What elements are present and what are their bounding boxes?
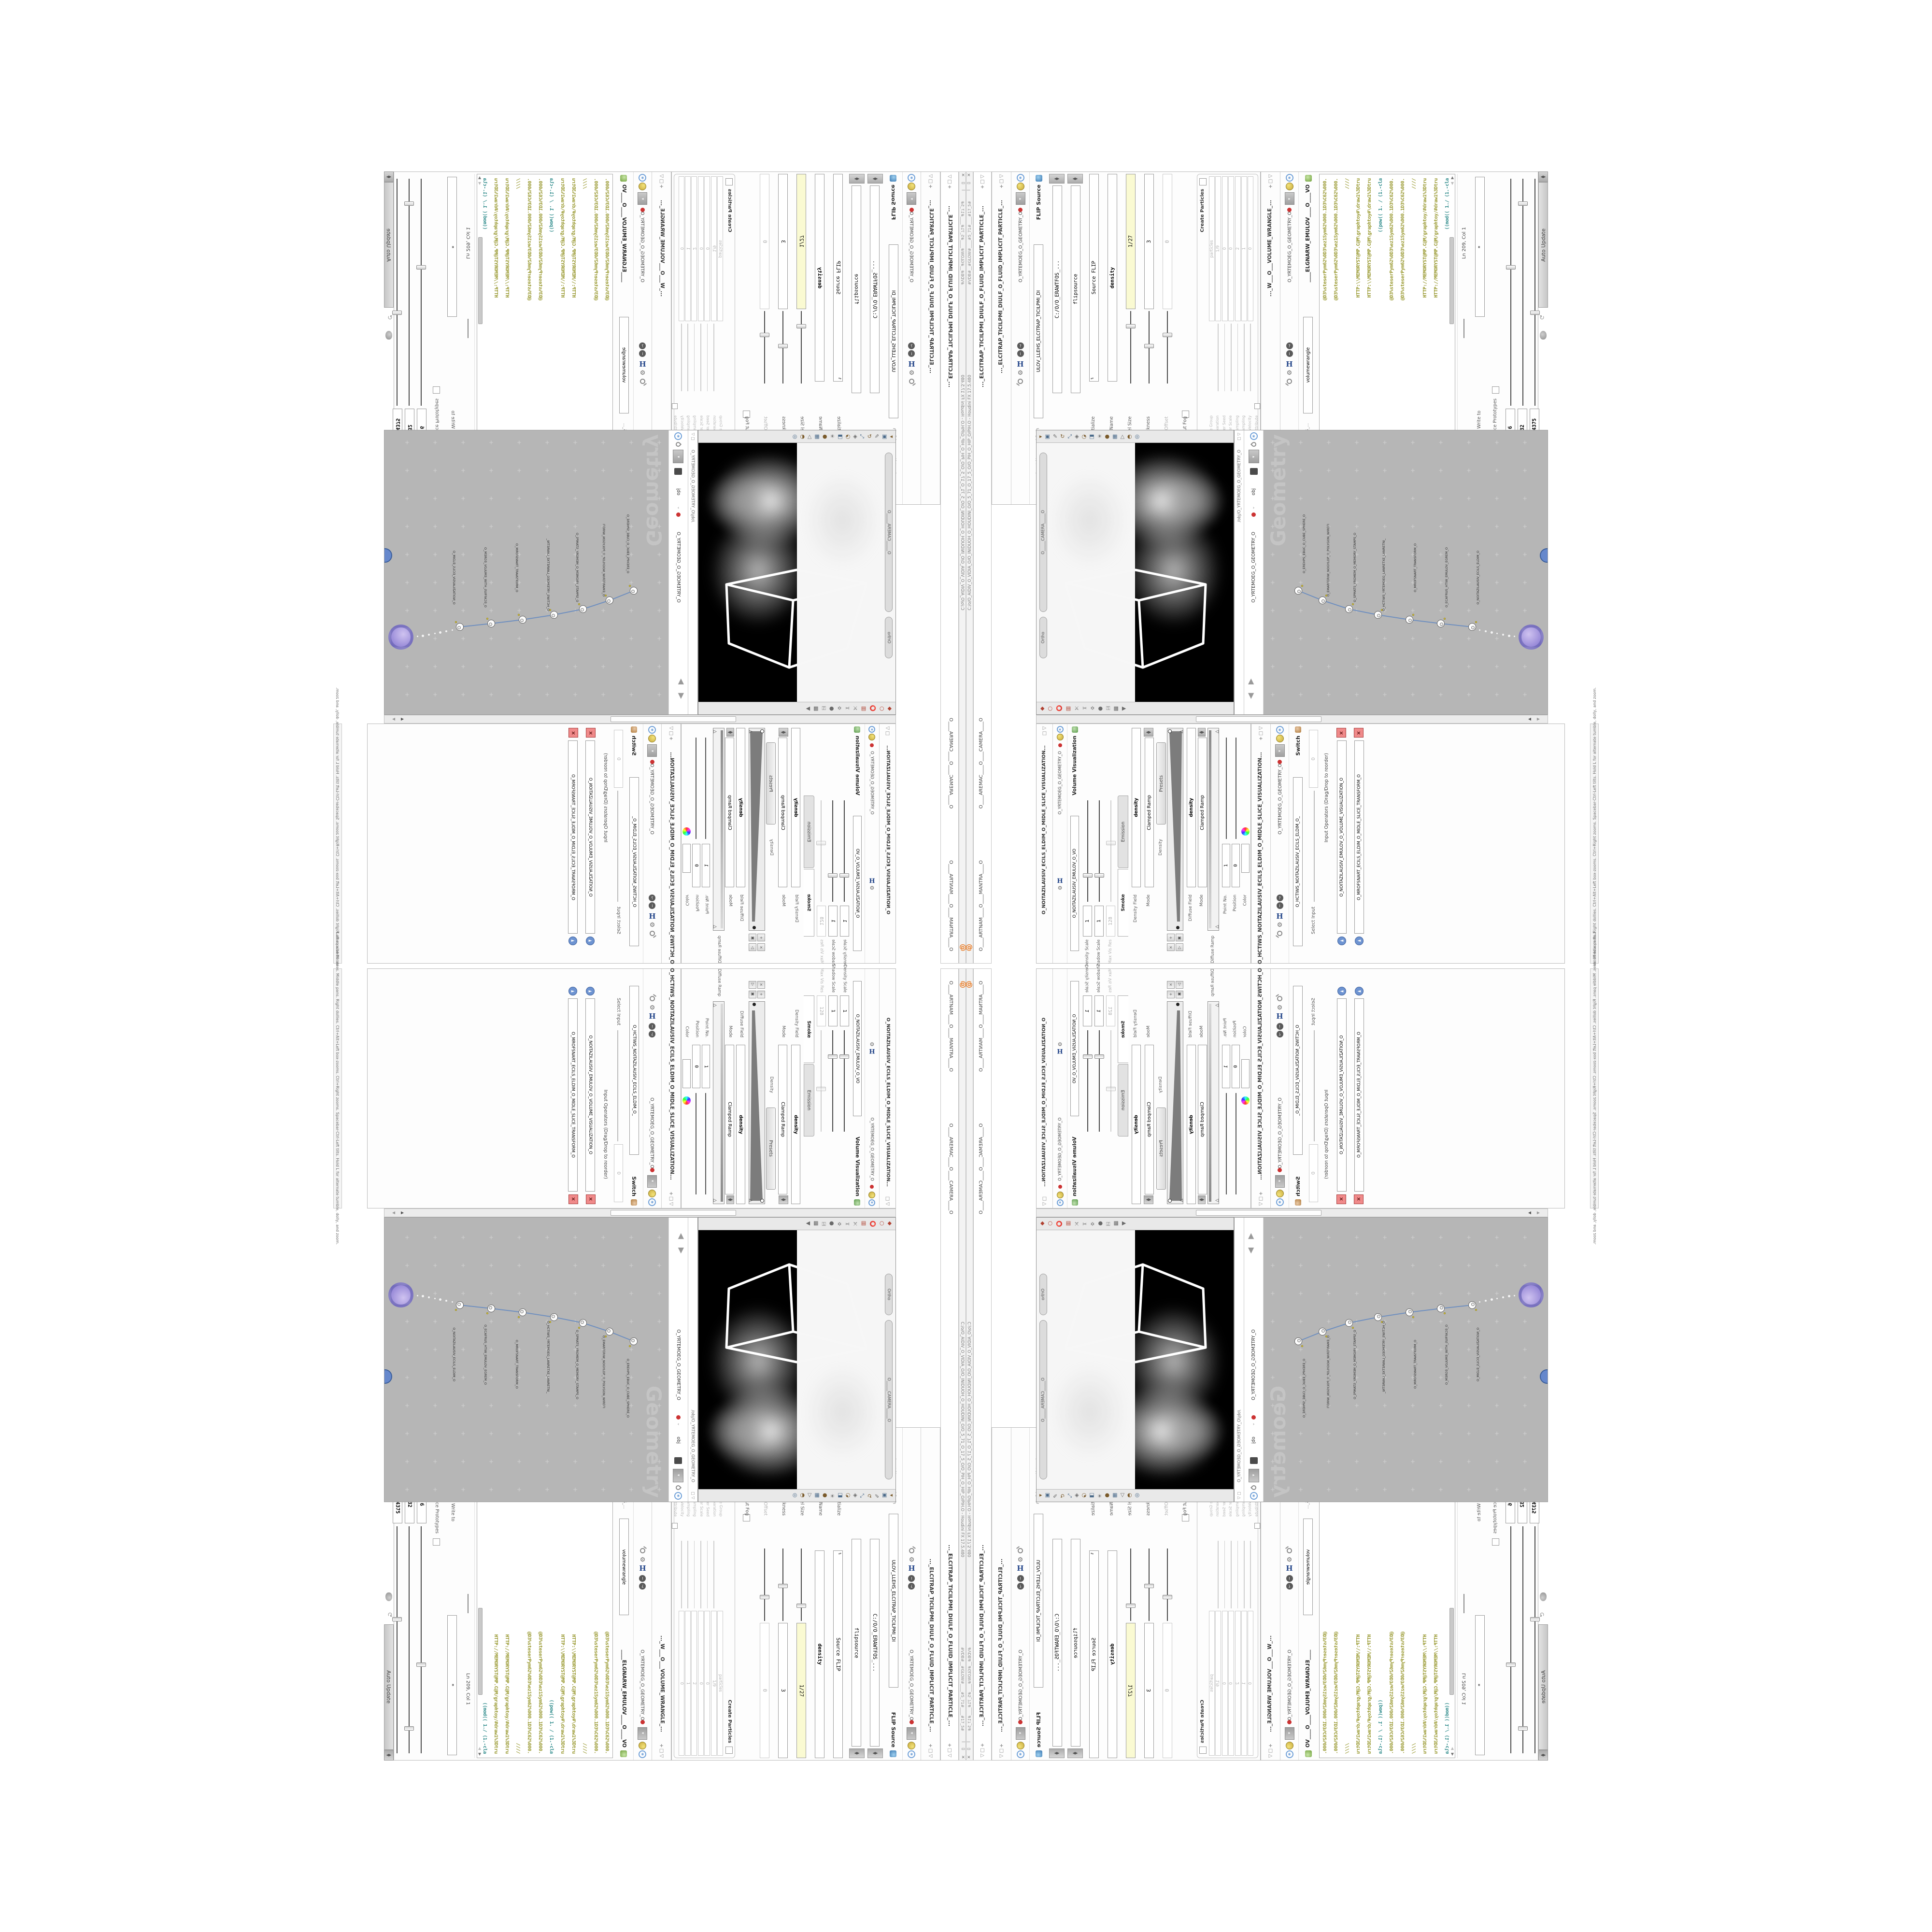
point-slider-track[interactable] [1236,738,1236,839]
input-operator-field[interactable]: O_NOITAZILAUSIV_EMULOV_O_VOLUME_VISUALIZ… [585,998,595,1192]
pane-play-icon[interactable]: ▷ [1037,1201,1052,1207]
network-node[interactable] [1319,1328,1326,1335]
editor-scroll-down-icon[interactable]: ▼ [478,181,481,185]
gear-icon[interactable]: ⚙ [1053,1041,1067,1047]
volviz-slider-track[interactable] [1110,1030,1111,1132]
param-value-field[interactable]: 1/27 [796,174,806,309]
breadcrumb-geometry[interactable]: O_YRTEMOEG_O_GEOMETRY_O [869,751,874,814]
group-value-field[interactable]: 0 [679,176,684,321]
select-slider-track[interactable] [618,1030,619,1141]
pane-maximize-icon[interactable]: □ [1261,1748,1280,1753]
pane-tab-title[interactable]: O_HCTIWS_NOITAZILAUSIV_ECILS_ELDIM_O_MID… [669,752,675,964]
select-input-field[interactable]: 0 [614,730,623,788]
network-node[interactable] [456,1301,464,1309]
param-value-field[interactable]: flipsource [1071,185,1080,393]
viewport-sphere-tool-icon[interactable]: ● [829,705,834,711]
param-value-field[interactable]: 3 [1144,174,1154,309]
viewport-tool-move-icon[interactable]: ✎ [875,1492,879,1499]
ramp-handle-triangle[interactable]: ◁ [1215,729,1219,734]
ramp-point-field[interactable]: 0 [1232,844,1240,887]
field-spinner-cap[interactable]: ◀▶ [1144,728,1153,737]
pane-maximize-icon[interactable]: □ [662,1196,681,1201]
node-display-flag[interactable] [486,1312,488,1314]
viewport-tool-rotate-icon[interactable]: ↻ [1060,433,1065,440]
color-wheel-icon[interactable] [1241,1096,1250,1105]
particle-fluid-node[interactable]: O_TRANSPART_TLUZER_O_RESULT_TRANSPARENT_… [388,625,413,650]
volviz-slider-track[interactable] [1099,1030,1100,1132]
spare-slider-track[interactable] [1510,1526,1511,1753]
editor-scroll-up-icon[interactable]: ▲ [478,1752,481,1757]
pane-play-icon[interactable]: ▷ [662,1201,681,1207]
volviz-slider-value-field[interactable]: 128 [817,995,826,1026]
info-icon[interactable]: i [1017,350,1024,357]
point-slider-track[interactable] [696,1093,697,1194]
viewport-tool-snap-icon[interactable]: ◈ [1075,1492,1079,1499]
viewport-tool-viewcube-icon[interactable]: ◔ [1082,433,1087,440]
group-slider-track[interactable] [681,324,682,391]
volumes-write-to-field[interactable]: * [447,177,457,317]
ramp-point-field[interactable]: 1 [702,844,710,887]
gear-icon[interactable]: ⚙ [1011,1555,1029,1563]
group-slider-track[interactable] [1224,1541,1225,1608]
viewport-tool-select-icon[interactable]: ▸ [1039,1492,1042,1499]
pane-split-icon[interactable]: + [992,184,1011,189]
material-ball-icon[interactable] [869,1192,876,1198]
spare-slider-track[interactable] [1510,179,1511,406]
presets-button[interactable]: Presets [1156,1108,1166,1190]
scene-viewport-pane[interactable]: ▸▣✎↻⤢◈◔⬒☀●▦△◐◎O_____CAMERA_____OOrtho◆○⭕… [698,1217,896,1502]
viewport-tool-render-icon[interactable]: ⬒ [838,1492,842,1499]
node-display-flag[interactable] [1301,1345,1303,1347]
pane-play-icon[interactable]: ▷ [921,173,940,179]
param-value-field[interactable]: C:/O/O_ERAWTFOS_... [870,1539,880,1747]
viewport-flipbook-icon[interactable]: ▶ [1122,705,1126,711]
volviz-tab-title[interactable]: O_NOITAZILAUSIV_ECILS_ELDIM_O_MIDLE_SLIC… [1041,745,1047,914]
target-icon[interactable]: ◉ [1017,174,1024,182]
particle-fluid-node[interactable]: O_TRANSPART_TLUZER_O_RESULT_TRANSPARENT_… [1519,625,1544,650]
spare-slider-handle[interactable] [417,1662,426,1667]
horizontal-scrollbar[interactable]: ◀ ▶ [384,715,896,724]
viewport-jack-icon[interactable]: ✡ [1090,705,1094,711]
info-icon[interactable]: i [649,902,656,909]
help-icon[interactable]: ? [909,1583,915,1590]
param-slider-handle[interactable] [778,1584,788,1589]
volviz-slider-value-field[interactable]: 1 [828,995,838,1026]
reorder-input-button[interactable]: ◄ [1337,937,1346,945]
param-value-field[interactable]: 3 [778,1623,788,1758]
group-value-field[interactable]: 2 [1235,176,1241,321]
material-ball-icon[interactable] [639,1742,647,1749]
pane-tab-button[interactable]: ▸ [1275,744,1285,757]
breadcrumb-geometry[interactable]: O_YRTEMOEG_O_GEOMETRY_O [639,1649,645,1720]
param-value-field[interactable]: Source FLIP▴▾ [833,1550,843,1758]
ramp-curve-button[interactable]: △ [749,943,756,951]
group-slider-track[interactable] [694,324,695,391]
target-icon[interactable]: ◉ [649,726,656,734]
pane-play-icon[interactable]: ▷ [992,173,1011,179]
create-particles-checkbox[interactable] [725,1747,733,1754]
point-slider-track[interactable] [1226,738,1227,839]
help-icon[interactable]: ? [639,1583,646,1590]
density-ramp-widget[interactable]: ◁ [1167,728,1183,931]
volviz-field[interactable]: Clamped Ramp [1198,1045,1207,1194]
breadcrumb-geometry[interactable]: O_YRTEMOEG_O_GEOMETRY_O [909,1649,914,1720]
volviz-field[interactable]: density [1132,728,1141,887]
scroll-left-icon[interactable]: ◀ [401,717,404,721]
field-spinner-cap[interactable]: ◀▶ [779,1195,788,1204]
ramp-handle-triangle2[interactable]: ◁ [713,1003,717,1008]
pane-split-icon[interactable]: + [974,185,991,190]
volviz-slider-handle[interactable] [1106,841,1116,845]
volviz-slider-handle[interactable] [828,1054,838,1059]
density-ramp-widget[interactable]: ◁ [1167,1001,1183,1204]
input-operator-field[interactable]: O_MROFSNART_ECILS_ELDIM_O_MIDLE_SLICE_TR… [1354,998,1364,1192]
viewport-tool-grid-icon[interactable]: ▦ [1112,1492,1117,1499]
ramp-handle-circle[interactable] [1168,1199,1172,1203]
network-node[interactable] [487,620,495,627]
viewport-jack-icon[interactable]: ✡ [838,1221,842,1227]
volviz-name-field[interactable]: O_NOITAZILAUSIV_EMULOV_O_VO [853,816,862,951]
material-ball-icon[interactable] [869,734,876,740]
close-icon[interactable]: × [961,173,965,178]
info-icon[interactable]: i [639,350,646,357]
point-slider-track[interactable] [1226,1093,1227,1194]
ramp-handle-triangle[interactable]: ◁ [713,729,717,734]
ramp-handle-triangle2[interactable]: ◁ [1215,924,1219,929]
viewport-tool-camera-icon[interactable]: ◎ [793,433,797,440]
param-value-field[interactable]: flipsource [852,1539,861,1747]
point-slider-track[interactable] [1236,1093,1236,1194]
select-input-field[interactable]: 0 [614,1144,623,1202]
group-value-field[interactable]: 0 [679,1611,684,1756]
pin-icon[interactable] [1250,1484,1257,1491]
viewport-render-area[interactable]: O_____CAMERA_____OOrtho [1037,443,1234,703]
info-icon[interactable]: i [1286,350,1293,357]
pane-tab-button[interactable]: ▸ [1285,192,1294,205]
tab-mantra[interactable]: O____ARTNAM____O____MANTRA____O [948,860,953,951]
gear-icon[interactable]: ⚙ [1271,1003,1289,1010]
close-icon[interactable]: × [961,1754,965,1759]
delete-input-button[interactable]: × [568,728,578,738]
viewport-tool-material-icon[interactable]: ● [1105,1492,1110,1499]
param-slider-handle[interactable] [1126,324,1136,328]
param-value-field[interactable]: 0 [1163,1623,1172,1758]
window-title-bar[interactable]: × ▭ — #VDB#__#GLOW#____#5_71#____#17_5# … [966,968,973,1761]
viewport-tool-viewcube-icon[interactable]: ◔ [846,1492,851,1499]
spare-slider-track[interactable] [421,1526,422,1753]
group-slider-track[interactable] [1231,324,1232,391]
pane-tab-title[interactable]: ..._ELCITRAP_TICILPMI_DIULF_O_FLUID_IMPL… [928,200,934,373]
reorder-input-button[interactable]: ◄ [1355,987,1364,995]
node-display-flag[interactable] [629,585,631,587]
network-node[interactable] [579,605,587,613]
node-display-flag[interactable] [455,1309,457,1311]
pane-split-icon[interactable]: + [652,184,671,189]
viewport-tool-shade-icon[interactable]: ◐ [1127,1492,1132,1499]
pane-tab-title[interactable]: ..._ELCITRAP_TICILPMI_DIULF_O_FLUID_IMPL… [998,1559,1004,1732]
reorder-input-button[interactable]: ◄ [568,937,577,945]
ramp-curve-button[interactable]: △ [749,981,756,989]
volviz-slider-track[interactable] [1110,800,1111,902]
viewport-flipbook-icon[interactable]: ▶ [806,705,810,711]
viewport-scissors-icon[interactable]: ✂ [845,705,850,711]
pane-maximize-icon[interactable]: □ [1235,1492,1244,1496]
target-icon[interactable]: ◉ [1286,174,1293,182]
net-scroll-up-icon[interactable]: ▲ [1248,676,1254,685]
pane-tab-button[interactable]: ▸ [1285,1727,1294,1740]
viewport-magnet-edge-icon[interactable]: ○ [880,1221,884,1227]
viewport-tool-scale-icon[interactable]: ⤢ [1067,433,1072,440]
ramp-box-button[interactable]: ▣ [1176,991,1183,998]
help-icon[interactable]: ? [1286,342,1293,349]
param-slider-track[interactable] [764,311,765,384]
pane-maximize-icon[interactable]: □ [1037,731,1052,736]
spare-slider-track[interactable] [1522,179,1523,406]
group-slider-track[interactable] [707,1541,708,1608]
scroll-left-icon[interactable]: ◀ [1528,717,1531,721]
volviz-slider-value-field[interactable]: 1 [828,906,838,937]
ortho-pill[interactable]: Ortho [1039,617,1047,658]
param-value-field[interactable]: C:/O/O_ERAWTFOS_... [1052,1539,1062,1747]
pane-split-icon[interactable]: + [1261,1743,1280,1748]
pane-split-icon[interactable]: + [921,184,940,189]
network-node[interactable] [579,1319,587,1327]
viewport-tool-render-icon[interactable]: ⬒ [838,433,842,440]
delete-input-button[interactable]: × [1336,728,1346,738]
param-value-field[interactable]: 0 [1163,174,1172,309]
help-icon[interactable]: ? [909,342,915,349]
update-bar-cap[interactable]: ◀▶ [1538,1750,1548,1761]
pane-play-icon[interactable]: ▷ [652,173,671,179]
ramp-curve-button[interactable]: △ [1176,981,1183,989]
scrollbar-thumb[interactable] [611,1210,736,1216]
viewport-tool-wireframe-icon[interactable]: △ [1121,433,1124,440]
viewport-magnet-multi-icon[interactable]: ▤ [1066,705,1071,711]
auto-update-button[interactable]: Auto Update [1540,1671,1547,1704]
restore-icon[interactable]: ▭ [967,181,971,185]
viewport-key-icon[interactable]: ⚿ [1106,705,1110,712]
spare-slider-track[interactable] [397,1526,398,1753]
magnifier-icon[interactable] [650,996,655,1001]
field-spinner-cap[interactable]: ◀▶ [867,174,883,184]
magnifier-icon[interactable] [1018,379,1023,384]
pane-play-icon[interactable]: ▷ [974,174,991,179]
pane-maximize-icon[interactable]: □ [921,179,940,184]
ramp-add-point-button[interactable]: + [1167,934,1175,941]
group-slider-track[interactable] [688,324,689,391]
group-slider-track[interactable] [688,1541,689,1608]
scroll-left-icon[interactable]: ◀ [1528,1211,1531,1215]
update-bar-cap[interactable]: ◀▶ [384,1750,394,1761]
volviz-slider-value-field[interactable]: 1 [1083,906,1092,937]
breadcrumb-obj[interactable]: obj [1251,1437,1256,1444]
ramp-box-button[interactable]: ▣ [749,991,756,998]
group-value-field[interactable]: particles [1209,1611,1215,1756]
volviz-slider-track[interactable] [832,1030,833,1132]
network-node[interactable] [1294,1337,1302,1345]
volviz-field[interactable]: density [1132,1045,1141,1204]
net-scroll-up-icon[interactable]: ▲ [678,1247,684,1256]
delete-input-button[interactable]: × [1336,1194,1346,1204]
volumes-write-to-field[interactable]: * [1475,177,1485,317]
ramp-delete-point-button[interactable]: × [1167,981,1175,989]
group-value-field[interactable]: 0 [704,176,710,321]
pin-icon[interactable] [675,441,682,448]
pane-split-icon[interactable]: + [992,1743,1011,1748]
viewport-tool-select-icon[interactable]: ▸ [890,1492,893,1499]
viewport-tool-render-icon[interactable]: ⬒ [1089,433,1094,440]
network-node[interactable] [1319,597,1326,604]
breadcrumb-obj[interactable]: obj [676,488,681,495]
param-value-field[interactable]: density [1108,1550,1117,1758]
ramp-curve-button[interactable]: △ [1176,943,1183,951]
volviz-slider-value-field[interactable]: 1 [1083,995,1092,1026]
viewport-tool-handles-icon[interactable]: ▣ [1045,433,1050,440]
group-value-field[interactable]: 0 [704,1611,710,1756]
magnifier-icon[interactable] [1277,996,1282,1001]
volviz-field[interactable]: Clamped Ramp [1198,738,1207,887]
pane-play-icon[interactable]: ▷ [1261,173,1280,179]
group-slider-track[interactable] [1218,324,1219,391]
network-node[interactable] [550,1313,558,1321]
viewport-magnet-edge-icon[interactable]: ○ [1048,1221,1052,1227]
field-spinner-cap[interactable]: ◀▶ [849,1748,865,1758]
viewport-dopsheet-icon[interactable]: ▩ [1113,705,1118,711]
network-editor-pane[interactable]: ▷□/obj/O_YRTEMOEG_O_GEOMETRY_O◉▸obj›O_YR… [1234,430,1548,715]
volviz-slider-handle[interactable] [816,841,826,845]
net-scroll-down-icon[interactable]: ▼ [678,691,684,700]
volviz-slider-value-field[interactable]: 1 [1094,995,1104,1026]
param-value-field[interactable]: Source FLIP▴▾ [1089,1550,1099,1758]
target-icon[interactable]: ◉ [869,1199,876,1206]
volviz-field[interactable]: Clamped Ramp [1145,1045,1154,1194]
target-icon[interactable]: ◉ [1057,726,1064,733]
network-node[interactable] [1294,587,1302,595]
group-slider-track[interactable] [1244,1541,1245,1608]
viewport-tool-camera-icon[interactable]: ◎ [1135,433,1140,440]
net-scroll-down-icon[interactable]: ▼ [1248,691,1254,700]
pin-icon[interactable] [675,1484,682,1491]
param-slider-handle[interactable] [1163,333,1172,337]
pane-tab-button[interactable]: ▸ [907,192,917,205]
volviz-tab-title[interactable]: O_NOITAZILAUSIV_ECILS_ELDIM_O_MIDLE_SLIC… [885,1018,891,1187]
select-slider-track[interactable] [1314,791,1315,902]
reorder-input-button[interactable]: ◄ [568,987,577,995]
network-node[interactable] [606,1328,613,1335]
horizontal-scrollbar[interactable]: ◀ ▶ [1036,715,1548,724]
param-slider-track[interactable] [764,1548,765,1621]
volviz-slider-value-field[interactable]: 1 [840,995,849,1026]
group-slider-track[interactable] [707,324,708,391]
delete-input-button[interactable]: × [586,728,596,738]
enforce-prototypes-checkbox[interactable] [1492,1538,1499,1546]
param-slider-handle[interactable] [1126,1604,1136,1608]
param-value-field[interactable]: 1/27 [1126,174,1136,309]
network-editor-pane[interactable]: ▷□/obj/O_YRTEMOEG_O_GEOMETRY_O◉▸obj›O_YR… [384,430,698,715]
group-slider-track[interactable] [700,324,701,391]
editor-scroll-down-icon[interactable]: ▼ [1451,1747,1454,1751]
pane-play-icon[interactable]: ▷ [941,1753,958,1758]
pane-maximize-icon[interactable]: □ [974,1747,991,1753]
tab-flip-particle[interactable]: ..._ELCITRAP_TICILPMI_DIULF_O_FLUID_IMPL… [979,206,985,387]
breadcrumb-geometry[interactable]: O_YRTEMOEG_O_GEOMETRY_O [649,1097,654,1168]
viewport-tool-wireframe-icon[interactable]: △ [808,1492,811,1499]
update-bar-cap[interactable]: ◀▶ [1538,171,1548,182]
pane-split-icon[interactable]: + [921,1743,940,1748]
volviz-slider-track[interactable] [844,1030,845,1132]
breadcrumb-geometry[interactable]: O_YRTEMOEG_O_GEOMETRY_O [676,1329,681,1400]
param-value-field[interactable]: Source FLIP▴▾ [833,174,843,382]
density-ramp-widget[interactable]: ◁ [749,728,765,931]
group-checkbox[interactable] [1254,403,1260,409]
pane-split-icon[interactable]: + [1251,1191,1270,1196]
viewport-magnet-point-icon[interactable]: ◆ [1040,705,1044,711]
editor-scrollbar-thumb[interactable] [478,1608,483,1695]
tab-camera[interactable]: O____AREMAC____O____CAMERA____O [948,1123,953,1214]
group-slider-track[interactable] [1231,1541,1232,1608]
tab-smoke[interactable]: Smoke [1118,995,1128,1063]
material-ball-icon[interactable] [1286,183,1293,190]
tab-emission[interactable]: Emission [804,1064,814,1136]
spare-slider-track[interactable] [397,179,398,406]
restore-icon[interactable]: ▭ [967,1747,971,1751]
viewport-tool-handles-icon[interactable]: ▣ [882,1492,887,1499]
particle-fluid-node[interactable]: O_TRANSPART_TLUZER_O_RESULT_TRANSPARENT_… [388,1282,413,1307]
editor-scroll-up-icon[interactable]: ▲ [1451,175,1454,180]
viewport-magnet-edge-icon[interactable]: ○ [1048,705,1052,711]
pane-tab-title[interactable]: ..._W___O___VOLUME_WRANGLE_... [1267,200,1273,297]
breadcrumb-geometry[interactable]: O_YRTEMOEG_O_GEOMETRY_O [869,1118,874,1181]
field-spinner-cap[interactable]: ◀▶ [1198,1195,1206,1204]
create-particles-checkbox[interactable] [1199,178,1207,185]
viewport-tool-grid-icon[interactable]: ▦ [1112,433,1117,440]
param-slider-track[interactable] [1167,1548,1168,1621]
viewport-tool-wireframe-icon[interactable]: △ [1121,1492,1124,1499]
ramp-handle-triangle[interactable]: ◁ [749,729,753,734]
gear-icon[interactable]: ⚙ [1280,1555,1298,1563]
pane-maximize-icon[interactable]: □ [941,179,958,185]
volviz-slider-value-field[interactable]: 128 [817,906,826,937]
editor-scroll-up-icon[interactable]: ▲ [478,175,481,180]
viewport-scissors-icon[interactable]: ✂ [1082,1221,1087,1227]
pane-tab-title[interactable]: O_HCTIWS_NOITAZILAUSIV_ECILS_ELDIM_O_MID… [1257,968,1263,1180]
viewport-tool-material-icon[interactable]: ● [1105,433,1110,440]
group-value-field[interactable]: 1 [1241,176,1247,321]
breadcrumb-geometry[interactable]: O_YRTEMOEG_O_GEOMETRY_O [1058,1118,1063,1181]
info-icon[interactable]: i [1286,1575,1293,1582]
magnifier-icon[interactable] [640,1548,645,1553]
pane-play-icon[interactable]: ▷ [921,1753,940,1759]
flip-node-name-field[interactable]: ULOV_LLEHS_ELCITRAP_TICILPMI_DI [1034,1514,1043,1688]
network-node[interactable] [1437,1305,1445,1312]
pane-play-icon[interactable]: ▷ [880,1201,895,1207]
viewport-tool-shade-icon[interactable]: ◐ [1127,433,1132,440]
gear-icon[interactable]: ⚙ [634,1555,652,1563]
group-value-field[interactable]: 0 [1222,176,1228,321]
target-icon[interactable]: ◉ [649,1198,656,1206]
ramp-add-point-button[interactable]: + [757,991,765,998]
param-slider-handle[interactable] [1144,1584,1154,1589]
close-icon[interactable]: × [967,173,971,178]
create-particles-checkbox[interactable] [725,178,733,185]
group-slider-track[interactable] [700,1541,701,1608]
pane-maximize-icon[interactable]: □ [1235,436,1244,440]
pane-play-icon[interactable]: ▷ [652,1753,671,1759]
viewport-tool-select-icon[interactable]: ▸ [1039,433,1042,440]
help-icon[interactable]: ? [649,895,656,901]
field-spinner-cap[interactable]: ◀▶ [1198,728,1206,737]
pane-play-icon[interactable]: ▷ [688,432,697,436]
